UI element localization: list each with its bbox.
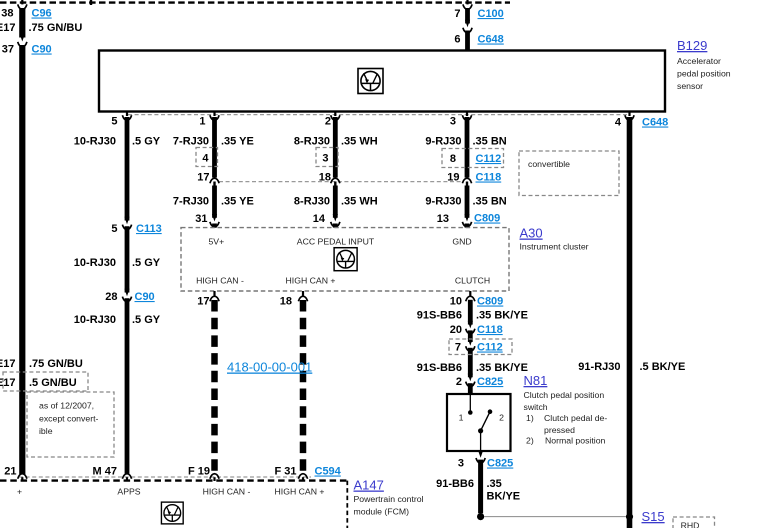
svg-text:C594: C594: [315, 466, 342, 478]
svg-text:C809: C809: [474, 213, 500, 225]
svg-text:sensor: sensor: [677, 81, 703, 91]
svg-text:.5 GY: .5 GY: [132, 136, 161, 148]
svg-text:C112: C112: [477, 342, 503, 354]
svg-text:HIGH CAN -: HIGH CAN -: [196, 276, 244, 286]
svg-text:APPS: APPS: [117, 487, 140, 497]
svg-text:91S-BB6: 91S-BB6: [417, 310, 462, 322]
svg-text:10-RJ30: 10-RJ30: [74, 136, 116, 148]
svg-text:2): 2): [526, 436, 534, 446]
svg-text:3: 3: [450, 116, 456, 128]
svg-text:C648: C648: [478, 34, 504, 46]
svg-text:Instrument cluster: Instrument cluster: [520, 242, 589, 252]
svg-text:Clutch pedal position: Clutch pedal position: [524, 390, 605, 400]
svg-text:F 31: F 31: [274, 466, 296, 478]
svg-text:E17: E17: [0, 377, 16, 389]
svg-text:E17: E17: [0, 358, 16, 370]
svg-text:switch: switch: [524, 402, 548, 412]
svg-text:as of 12/2007,: as of 12/2007,: [39, 401, 94, 411]
svg-text:B129: B129: [677, 38, 707, 53]
svg-text:A147: A147: [354, 478, 384, 493]
svg-text:7: 7: [455, 342, 461, 354]
svg-text:1: 1: [459, 413, 464, 423]
svg-text:RHD: RHD: [681, 521, 700, 528]
svg-text:C825: C825: [487, 458, 513, 470]
svg-text:7: 7: [454, 8, 460, 20]
svg-text:C90: C90: [135, 291, 155, 303]
svg-text:17: 17: [197, 172, 209, 184]
svg-text:.35 BK/YE: .35 BK/YE: [476, 310, 528, 322]
svg-text:C825: C825: [477, 376, 503, 388]
svg-text:.5 BK/YE: .5 BK/YE: [640, 361, 686, 373]
svg-text:91-RJ30: 91-RJ30: [578, 361, 620, 373]
svg-text:E17: E17: [0, 22, 16, 34]
svg-text:20: 20: [450, 324, 462, 336]
svg-text:2: 2: [456, 376, 462, 388]
svg-text:10-RJ30: 10-RJ30: [74, 314, 116, 326]
svg-text:C118: C118: [477, 324, 503, 336]
svg-text:.35 YE: .35 YE: [221, 136, 254, 148]
svg-text:pedal position: pedal position: [677, 69, 731, 79]
svg-text:C648: C648: [642, 117, 668, 129]
svg-text:.5 GN/BU: .5 GN/BU: [29, 377, 77, 389]
svg-text:.75 GN/BU: .75 GN/BU: [29, 22, 83, 34]
svg-text:Accelerator: Accelerator: [677, 56, 721, 66]
svg-text:8-RJ30: 8-RJ30: [294, 196, 330, 208]
svg-text:38: 38: [1, 8, 13, 20]
svg-text:except convert-: except convert-: [39, 414, 98, 424]
svg-text:14: 14: [313, 213, 326, 225]
svg-text:Clutch pedal de-: Clutch pedal de-: [544, 413, 607, 423]
svg-text:10-RJ30: 10-RJ30: [74, 257, 116, 269]
svg-text:4: 4: [615, 117, 622, 129]
svg-text:8: 8: [450, 153, 456, 165]
svg-text:13: 13: [437, 213, 449, 225]
svg-text:.35 BN: .35 BN: [473, 196, 507, 208]
svg-text:S15: S15: [642, 509, 665, 524]
svg-text:8-RJ30: 8-RJ30: [294, 136, 330, 148]
svg-text:418-00-00-001: 418-00-00-001: [227, 360, 312, 375]
svg-text:3: 3: [458, 458, 464, 470]
svg-text:ible: ible: [39, 426, 53, 436]
svg-text:.35 BK/YE: .35 BK/YE: [476, 362, 528, 374]
svg-text:F 19: F 19: [188, 466, 210, 478]
svg-text:ACC PEDAL INPUT: ACC PEDAL INPUT: [297, 237, 375, 247]
svg-text:HIGH CAN -: HIGH CAN -: [203, 487, 251, 497]
svg-text:2: 2: [325, 116, 331, 128]
svg-text:1): 1): [526, 413, 534, 423]
svg-text:9-RJ30: 9-RJ30: [425, 196, 461, 208]
svg-text:7-RJ30: 7-RJ30: [173, 136, 209, 148]
svg-text:6: 6: [454, 34, 460, 46]
svg-text:7-RJ30: 7-RJ30: [173, 196, 209, 208]
svg-text:91S-BB6: 91S-BB6: [417, 362, 462, 374]
svg-text:5V+: 5V+: [208, 237, 224, 247]
svg-text:BK/YE: BK/YE: [487, 491, 521, 503]
svg-text:C113: C113: [136, 223, 162, 235]
svg-text:10: 10: [450, 296, 462, 308]
svg-text:pressed: pressed: [544, 425, 575, 435]
svg-text:.5 GY: .5 GY: [132, 314, 161, 326]
svg-text:module (FCM): module (FCM): [354, 507, 410, 517]
svg-text:28: 28: [105, 291, 117, 303]
svg-text:C112: C112: [476, 153, 502, 165]
svg-text:.5 GY: .5 GY: [132, 257, 161, 269]
svg-text:18: 18: [319, 172, 331, 184]
svg-text:A30: A30: [520, 226, 543, 241]
svg-text:C118: C118: [476, 172, 502, 184]
svg-text:+: +: [17, 487, 22, 497]
svg-text:2: 2: [499, 413, 504, 423]
svg-text:.35 WH: .35 WH: [341, 196, 378, 208]
svg-text:Powertrain control: Powertrain control: [354, 494, 424, 504]
svg-text:C809: C809: [477, 296, 503, 308]
svg-text:5: 5: [111, 223, 117, 235]
svg-text:N81: N81: [524, 373, 548, 388]
svg-text:17: 17: [197, 296, 209, 308]
svg-text:.35: .35: [487, 478, 502, 490]
svg-text:.35 BN: .35 BN: [473, 136, 507, 148]
svg-text:9-RJ30: 9-RJ30: [425, 136, 461, 148]
svg-text:M 47: M 47: [93, 466, 117, 478]
svg-text:.35 WH: .35 WH: [341, 136, 378, 148]
svg-text:91-BB6: 91-BB6: [436, 478, 474, 490]
svg-text:.75 GN/BU: .75 GN/BU: [29, 358, 83, 370]
svg-text:CLUTCH: CLUTCH: [455, 276, 490, 286]
svg-text:C90: C90: [32, 44, 52, 56]
svg-text:GND: GND: [452, 237, 471, 247]
svg-text:19: 19: [447, 172, 459, 184]
svg-text:C100: C100: [478, 8, 504, 20]
svg-text:4: 4: [202, 153, 209, 165]
svg-text:31: 31: [195, 213, 207, 225]
svg-text:.35 YE: .35 YE: [221, 196, 254, 208]
svg-text:18: 18: [280, 296, 292, 308]
svg-text:1: 1: [199, 116, 205, 128]
svg-text:5: 5: [111, 116, 117, 128]
svg-text:HIGH CAN +: HIGH CAN +: [275, 487, 325, 497]
svg-text:convertible: convertible: [528, 159, 570, 169]
svg-text:C96: C96: [32, 8, 52, 20]
svg-text:21: 21: [4, 466, 16, 478]
svg-text:Normal position: Normal position: [545, 436, 606, 446]
svg-text:37: 37: [2, 44, 14, 56]
svg-text:HIGH CAN +: HIGH CAN +: [286, 276, 336, 286]
svg-text:3: 3: [322, 153, 328, 165]
